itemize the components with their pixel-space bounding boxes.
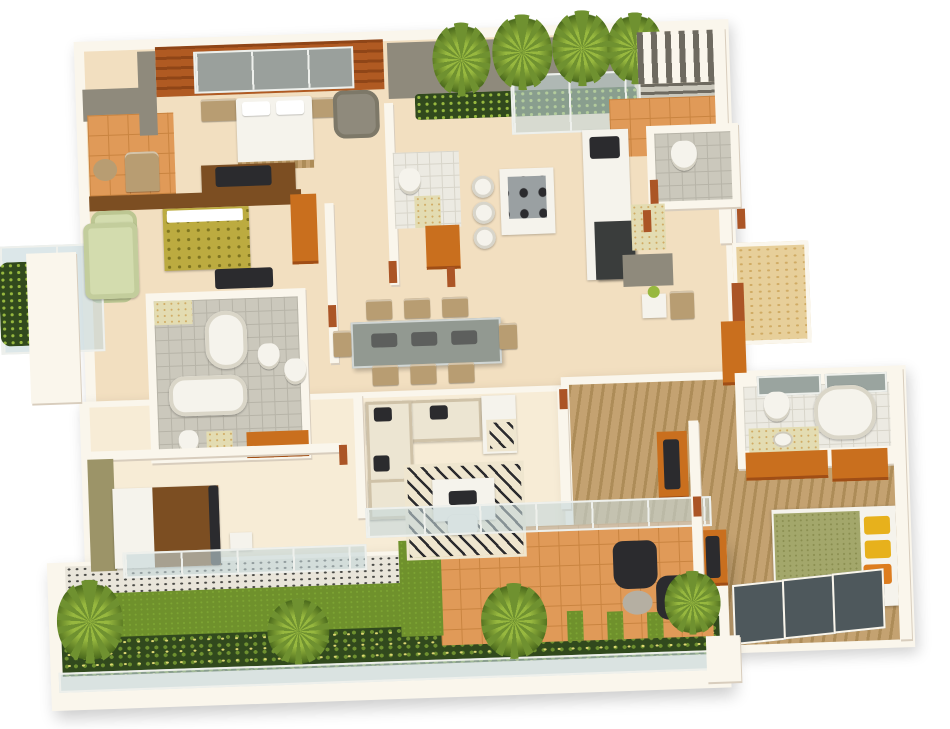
bedroom4-dark-glass-panel-3 [832,568,886,633]
dining-placemat-3 [451,330,477,345]
door-jamb-2 [328,305,337,327]
bedroom2-bed [163,206,251,271]
bedroom2-tv [215,267,274,289]
dining-placemat-1 [371,333,397,348]
ensuite-tub [813,384,877,440]
hall-gray-mat [622,253,673,287]
patio-grass-strip-2 [607,611,624,640]
door-jamb-8 [737,209,746,229]
master-bath-tub-rect [168,374,247,417]
living-sofa-pillow-1 [374,407,392,422]
dining-chair-left [333,330,352,357]
bedroom4-dark-glass-panel-1 [732,580,786,645]
bedroom4-pillow-yellow-1 [864,516,891,535]
kitchen-sink [589,136,620,159]
dining-chair-top-2 [404,298,431,319]
bedroom4-tv-1 [705,536,720,578]
left-balcony-sofa [83,222,140,300]
master-bath-tub-oval [204,310,248,369]
hall-plant [648,286,660,298]
dining-chair-bottom-2 [410,364,437,385]
hall-chair [670,290,695,319]
master-bed-pillow-2 [276,100,304,115]
door-jamb-5 [559,389,568,409]
dining-chair-bottom-1 [372,365,399,386]
master-side-wall [137,51,158,136]
bedroom4-dark-glass-panel-2 [782,574,836,639]
master-bed [236,96,314,165]
door-jamb-6 [339,445,348,465]
living-sofa-pillow-2 [430,405,448,420]
ensuite-window-1 [757,374,822,396]
dining-chair-right [499,323,518,350]
master-glass-wardrobe [193,46,354,94]
patio-armchair-1 [612,540,658,590]
bedroom2-wardrobe [290,194,318,265]
living-sofa-pillow-3 [373,455,390,472]
dining-placemat-2 [411,331,437,346]
living-tv [663,439,681,490]
door-jamb-7 [693,496,702,516]
ensuite-side-cabinet [831,448,888,482]
master-bench-left [201,98,238,121]
powder-room-jamb [650,180,659,204]
floor-plan-scene [0,0,950,712]
living-zebra-panel [486,419,517,452]
left-outer-wall-plate [26,252,81,404]
central-bath-cabinet [425,225,461,270]
kitchen-cooktop [508,176,547,219]
slat-screen [637,30,719,85]
bedroom4-pillow-yellow-2 [865,540,892,559]
coffee-table-tray [449,490,477,505]
door-jamb-4 [643,210,652,232]
terrace-lounge-chair [125,151,160,192]
patio-grass-strip-1 [567,611,584,642]
powder-room-floor [654,131,732,202]
master-armchair [333,89,381,139]
dining-chair-bottom-3 [448,362,475,383]
bedroom2-bed-pillows [167,208,243,223]
hall-side-table [642,293,667,318]
dining-chair-top-3 [442,296,469,317]
central-bath-vanity [414,195,441,228]
master-bath-vanity [154,300,193,325]
deck-planter-box [706,635,742,682]
master-bed-pillow-1 [242,101,270,116]
ensuite-basin [773,431,794,448]
ensuite-vanity-cabinet [745,450,828,481]
floor-plan [0,0,950,729]
dining-chair-top-1 [366,299,393,320]
master-tv [215,165,272,187]
dining-table [351,317,503,368]
door-jamb-1 [388,261,397,283]
door-jamb-3 [447,267,456,287]
